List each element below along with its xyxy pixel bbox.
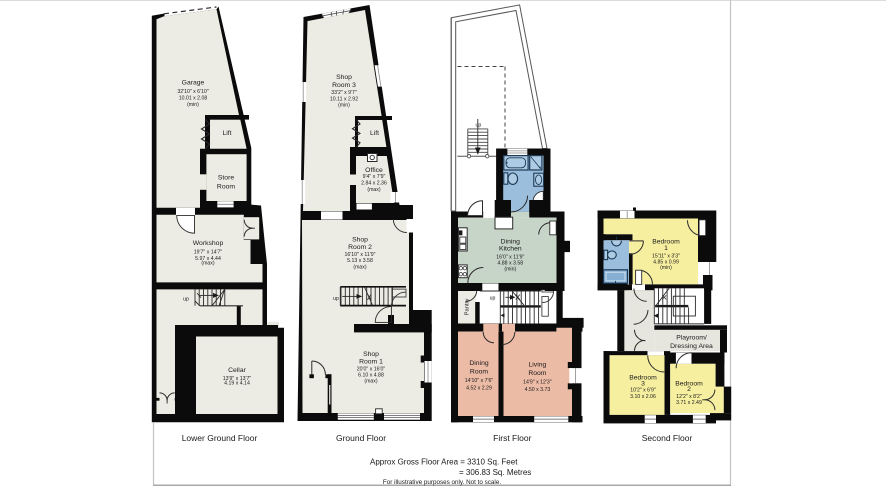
svg-text:12'2" x 8'2": 12'2" x 8'2" (676, 394, 702, 400)
svg-text:up: up (333, 296, 339, 302)
svg-text:4.50 x 3.73: 4.50 x 3.73 (525, 387, 551, 393)
svg-text:Dressing Area: Dressing Area (670, 343, 713, 350)
svg-text:(min): (min) (338, 103, 350, 109)
svg-text:Office: Office (365, 167, 383, 174)
svg-text:For illustrative purposes only: For illustrative purposes only. Not to s… (383, 479, 501, 486)
svg-text:9'4" x 7'9": 9'4" x 7'9" (363, 174, 386, 180)
svg-text:Workshop: Workshop (193, 240, 224, 247)
svg-text:32'10" x 6'10": 32'10" x 6'10" (177, 89, 208, 95)
svg-text:Lower Ground Floor: Lower Ground Floor (182, 433, 258, 443)
svg-text:(max): (max) (353, 264, 367, 270)
svg-text:3: 3 (641, 380, 645, 387)
svg-text:up: up (183, 297, 189, 303)
svg-text:10'2" x 6'9": 10'2" x 6'9" (630, 387, 656, 393)
svg-text:Shop: Shop (352, 237, 368, 244)
svg-text:(max): (max) (201, 261, 215, 267)
svg-text:15'11" x 3'3": 15'11" x 3'3" (652, 253, 680, 259)
svg-text:Room 3: Room 3 (332, 82, 356, 89)
svg-text:Pantry: Pantry (465, 299, 471, 316)
svg-text:(min): (min) (187, 102, 199, 108)
svg-text:14'9" x 12'3": 14'9" x 12'3" (523, 380, 552, 386)
svg-text:10.11 x 2.92: 10.11 x 2.92 (330, 97, 358, 103)
svg-text:First Floor: First Floor (493, 433, 531, 443)
svg-text:Store: Store (218, 175, 234, 182)
svg-text:Room 2: Room 2 (348, 244, 372, 251)
svg-text:16'0" x 11'9": 16'0" x 11'9" (496, 254, 524, 260)
svg-text:14'10" x 7'6": 14'10" x 7'6" (465, 378, 494, 384)
svg-text:5.13 x 3.58: 5.13 x 3.58 (347, 258, 373, 264)
svg-text:19'7" x 14'7": 19'7" x 14'7" (194, 250, 223, 256)
svg-text:Room: Room (470, 369, 488, 376)
svg-text:Dining: Dining (501, 239, 520, 246)
svg-text:(min): (min) (660, 265, 672, 271)
svg-text:1: 1 (664, 245, 668, 252)
svg-text:Garage: Garage (182, 80, 205, 87)
svg-text:2.84 x 2.36: 2.84 x 2.36 (361, 180, 387, 186)
svg-text:Shop: Shop (363, 351, 379, 358)
svg-text:Kitchen: Kitchen (499, 246, 522, 253)
svg-text:(min): (min) (504, 266, 516, 272)
svg-text:10.01 x 2.08: 10.01 x 2.08 (179, 96, 208, 102)
svg-text:= 306.83 Sq. Metres: = 306.83 Sq. Metres (459, 468, 531, 477)
svg-text:Playroom/: Playroom/ (676, 335, 707, 342)
svg-text:Living: Living (529, 362, 547, 369)
svg-text:Lift: Lift (370, 130, 379, 137)
svg-text:up: up (476, 123, 482, 129)
svg-text:Second Floor: Second Floor (642, 433, 693, 443)
svg-text:4.52 x 2.29: 4.52 x 2.29 (466, 386, 492, 392)
svg-text:6.10 x 4.88: 6.10 x 4.88 (358, 373, 384, 379)
svg-text:(max): (max) (367, 187, 381, 193)
svg-text:4.19 x 4.14: 4.19 x 4.14 (224, 381, 250, 387)
svg-text:Shop: Shop (336, 74, 352, 81)
svg-text:Room: Room (528, 370, 546, 377)
svg-text:Lift: Lift (222, 130, 231, 137)
svg-text:33'2" x 9'7": 33'2" x 9'7" (331, 90, 357, 96)
svg-text:(max): (max) (364, 379, 378, 385)
svg-text:Approx Gross Floor Area = 33: Approx Gross Floor Area = 3310 Sq. Feet (370, 458, 518, 467)
svg-text:Room: Room (217, 184, 235, 191)
svg-text:up: up (490, 296, 496, 302)
svg-text:Cellar: Cellar (228, 367, 246, 374)
svg-text:Room 1: Room 1 (359, 358, 383, 365)
svg-text:Ground Floor: Ground Floor (336, 433, 386, 443)
svg-text:2: 2 (687, 386, 691, 393)
svg-text:3.10 x 2.06: 3.10 x 2.06 (630, 394, 656, 400)
svg-text:3.71 x 2.49: 3.71 x 2.49 (676, 400, 702, 406)
svg-text:Dining: Dining (469, 360, 488, 367)
